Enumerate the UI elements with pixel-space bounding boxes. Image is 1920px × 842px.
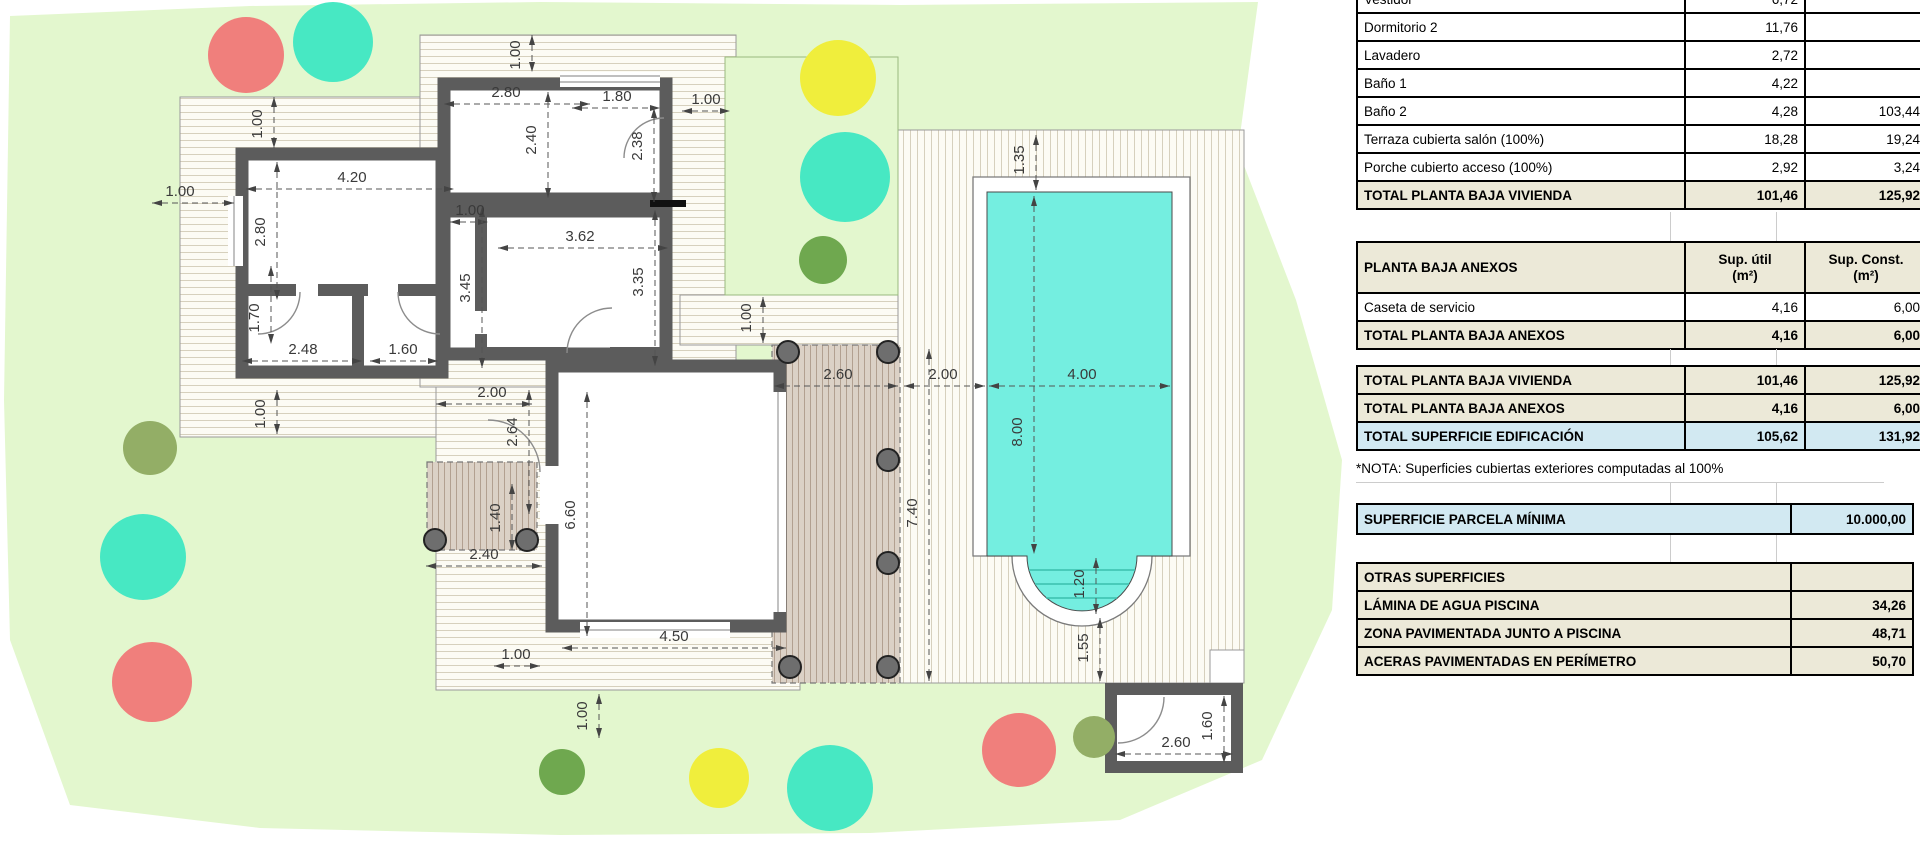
tree: [100, 514, 186, 600]
row-util: 4,28: [1685, 97, 1805, 125]
gridline: [1670, 212, 1671, 241]
tree: [799, 236, 847, 284]
col-header-sup-const: Sup. Const. (m²): [1805, 242, 1920, 293]
row-label: Baño 1: [1357, 69, 1685, 97]
tree: [208, 17, 284, 93]
window-sill: [650, 200, 686, 207]
summary-util: 101,46: [1685, 366, 1805, 394]
svg-text:2.64: 2.64: [504, 417, 521, 446]
row-label: Caseta de servicio: [1357, 293, 1685, 321]
svg-text:1.00: 1.00: [738, 303, 755, 332]
covered-terrace: [772, 345, 900, 683]
table-otras-superficies: OTRAS SUPERFICIES LÁMINA DE AGUA PISCINA…: [1356, 562, 1914, 676]
tree: [787, 745, 873, 831]
nota-text: *NOTA: Superficies cubiertas exteriores …: [1356, 456, 1884, 483]
row-label: Baño 2: [1357, 97, 1685, 125]
svg-text:3.62: 3.62: [565, 228, 594, 245]
otras-header: OTRAS SUPERFICIES: [1357, 563, 1791, 591]
row-util: 11,76: [1685, 13, 1805, 41]
svg-text:3.45: 3.45: [457, 273, 474, 302]
svg-text:1.35: 1.35: [1011, 145, 1028, 174]
svg-text:1.60: 1.60: [388, 341, 417, 358]
summary-const: 6,00: [1805, 394, 1920, 422]
row-const: 6,00: [1805, 293, 1920, 321]
table-planta-baja-vivienda: Vestidor 6,72 Dormitorio 2 11,76 Lavader…: [1356, 0, 1920, 210]
row-label: Terraza cubierta salón (100%): [1357, 125, 1685, 153]
svg-text:1.00: 1.00: [507, 40, 524, 69]
table-resumen-totales: TOTAL PLANTA BAJA VIVIENDA 101,46 125,92…: [1356, 365, 1920, 451]
parcela-value: 10.000,00: [1791, 504, 1913, 534]
otras-value: 48,71: [1791, 619, 1913, 647]
svg-text:2.40: 2.40: [469, 546, 498, 563]
tree: [123, 421, 177, 475]
row-util: 18,28: [1685, 125, 1805, 153]
svg-text:6.60: 6.60: [562, 500, 579, 529]
gridline: [1776, 535, 1777, 562]
row-label: Dormitorio 2: [1357, 13, 1685, 41]
tree: [293, 2, 373, 82]
svg-text:2.60: 2.60: [1161, 734, 1190, 751]
tree: [800, 132, 890, 222]
table-parcela-minima: SUPERFICIE PARCELA MÍNIMA 10.000,00: [1356, 503, 1914, 535]
svg-text:1.00: 1.00: [249, 109, 266, 138]
row-util: 4,22: [1685, 69, 1805, 97]
gridline: [1776, 349, 1777, 365]
total-label: TOTAL PLANTA BAJA VIVIENDA: [1357, 181, 1685, 209]
tree: [689, 748, 749, 808]
total-util: 101,46: [1685, 181, 1805, 209]
summary-util: 4,16: [1685, 394, 1805, 422]
row-const: [1805, 13, 1920, 41]
svg-text:1.70: 1.70: [246, 303, 263, 332]
gridline: [1776, 212, 1777, 241]
row-const: [1805, 41, 1920, 69]
svg-text:2.40: 2.40: [523, 125, 540, 154]
row-label: Lavadero: [1357, 41, 1685, 69]
col-header-sup-util: Sup. útil (m²): [1685, 242, 1805, 293]
svg-text:7.40: 7.40: [904, 498, 921, 527]
row-const: 3,24: [1805, 153, 1920, 181]
svg-text:2.80: 2.80: [491, 84, 520, 101]
summary-const: 131,92: [1805, 422, 1920, 450]
summary-label: TOTAL SUPERFICIE EDIFICACIÓN: [1357, 422, 1685, 450]
summary-label: TOTAL PLANTA BAJA VIVIENDA: [1357, 366, 1685, 394]
svg-text:2.00: 2.00: [928, 366, 957, 383]
svg-text:4.50: 4.50: [659, 628, 688, 645]
gridline: [1670, 535, 1671, 562]
row-util: 4,16: [1685, 293, 1805, 321]
svg-text:1.00: 1.00: [165, 183, 194, 200]
tree: [1073, 716, 1115, 758]
svg-text:2.80: 2.80: [252, 217, 269, 246]
row-const: 19,24: [1805, 125, 1920, 153]
svg-text:1.60: 1.60: [1199, 711, 1216, 740]
svg-text:1.00: 1.00: [455, 202, 484, 219]
gridline: [1776, 482, 1777, 503]
tree: [112, 642, 192, 722]
tree: [800, 40, 876, 116]
svg-text:4.00: 4.00: [1067, 366, 1096, 383]
row-util: 2,72: [1685, 41, 1805, 69]
row-label: Vestidor: [1357, 0, 1685, 13]
otras-label: ZONA PAVIMENTADA JUNTO A PISCINA: [1357, 619, 1791, 647]
otras-header-value: [1791, 563, 1913, 591]
otras-value: 50,70: [1791, 647, 1913, 675]
service-caseta: [1111, 689, 1237, 767]
svg-text:1.00: 1.00: [691, 91, 720, 108]
row-util: 2,92: [1685, 153, 1805, 181]
summary-const: 125,92: [1805, 366, 1920, 394]
svg-text:2.48: 2.48: [288, 341, 317, 358]
gridline: [1670, 482, 1671, 503]
svg-text:3.35: 3.35: [630, 267, 647, 296]
table-planta-baja-anexos: PLANTA BAJA ANEXOS Sup. útil (m²) Sup. C…: [1356, 241, 1920, 350]
otras-value: 34,26: [1791, 591, 1913, 619]
section-header: PLANTA BAJA ANEXOS: [1357, 242, 1685, 293]
svg-text:1.40: 1.40: [487, 503, 504, 532]
svg-text:1.20: 1.20: [1071, 569, 1088, 598]
tree: [539, 749, 585, 795]
svg-text:1.00: 1.00: [501, 646, 530, 663]
total-label: TOTAL PLANTA BAJA ANEXOS: [1357, 321, 1685, 349]
total-util: 4,16: [1685, 321, 1805, 349]
svg-text:1.00: 1.00: [574, 701, 591, 730]
row-label: Porche cubierto acceso (100%): [1357, 153, 1685, 181]
total-const: 125,92: [1805, 181, 1920, 209]
parcela-label: SUPERFICIE PARCELA MÍNIMA: [1357, 504, 1791, 534]
svg-text:2.60: 2.60: [823, 366, 852, 383]
svg-text:4.20: 4.20: [337, 169, 366, 186]
svg-text:2.38: 2.38: [629, 131, 646, 160]
row-const: [1805, 0, 1920, 13]
svg-text:2.00: 2.00: [477, 384, 506, 401]
svg-text:8.00: 8.00: [1009, 417, 1026, 446]
svg-text:1.80: 1.80: [602, 88, 631, 105]
total-const: 6,00: [1805, 321, 1920, 349]
tree: [982, 713, 1056, 787]
row-util: 6,72: [1685, 0, 1805, 13]
gridline: [1670, 349, 1671, 365]
otras-label: ACERAS PAVIMENTADAS EN PERÍMETRO: [1357, 647, 1791, 675]
summary-label: TOTAL PLANTA BAJA ANEXOS: [1357, 394, 1685, 422]
row-const: [1805, 69, 1920, 97]
svg-text:1.55: 1.55: [1075, 633, 1092, 662]
svg-text:1.00: 1.00: [252, 399, 269, 428]
summary-util: 105,62: [1685, 422, 1805, 450]
pool-water: [987, 192, 1172, 611]
caseta-landing: [1210, 650, 1244, 683]
row-const: 103,44: [1805, 97, 1920, 125]
otras-label: LÁMINA DE AGUA PISCINA: [1357, 591, 1791, 619]
